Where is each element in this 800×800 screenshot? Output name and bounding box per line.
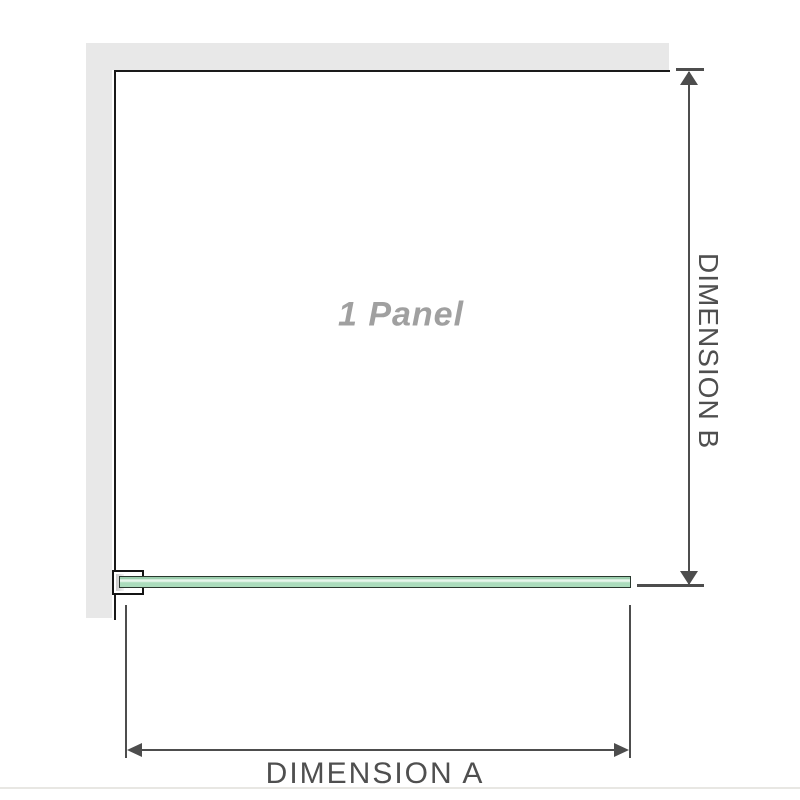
dimension-a-line xyxy=(133,749,623,751)
shower-screen-diagram: 1 Panel DIMENSION B DIMENSION A xyxy=(0,0,800,800)
dimension-a-arrow-left-icon xyxy=(127,743,142,757)
dimension-b-arrow-down-icon xyxy=(680,571,698,585)
glass-panel xyxy=(119,576,631,588)
dimension-a-extension-right xyxy=(629,605,631,758)
panel-outline xyxy=(114,70,670,620)
wall-left xyxy=(86,43,112,618)
baseline-rule xyxy=(0,787,800,789)
dimension-b-arrow-up-icon xyxy=(680,71,698,85)
dimension-a-arrow-right-icon xyxy=(614,743,629,757)
dimension-a-extension-left xyxy=(125,605,127,758)
panel-count-label: 1 Panel xyxy=(338,296,464,335)
dimension-a-label: DIMENSION A xyxy=(266,757,485,791)
wall-top xyxy=(86,43,669,70)
dimension-b-label: DIMENSION B xyxy=(692,253,724,449)
dimension-b-line xyxy=(688,72,690,584)
